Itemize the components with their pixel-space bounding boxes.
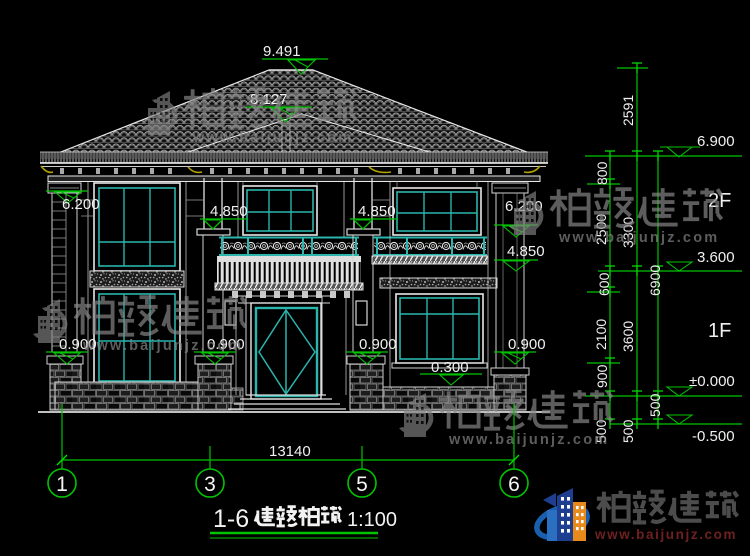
svg-text:9.491: 9.491 xyxy=(263,43,301,60)
svg-text:500: 500 xyxy=(620,419,636,443)
svg-text:4.850: 4.850 xyxy=(507,243,545,260)
svg-text:1-6: 1-6 xyxy=(213,505,249,533)
svg-text:800: 800 xyxy=(594,161,610,185)
svg-text:3.600: 3.600 xyxy=(697,249,735,266)
svg-text:13140: 13140 xyxy=(269,443,311,460)
svg-text:600: 600 xyxy=(596,272,612,296)
svg-text:6.900: 6.900 xyxy=(697,133,735,150)
svg-text:1:100: 1:100 xyxy=(347,509,397,531)
svg-text:0.900: 0.900 xyxy=(508,336,546,353)
svg-text:500: 500 xyxy=(647,393,663,417)
svg-text:www.baijunjz.com: www.baijunjz.com xyxy=(594,527,737,542)
svg-text:0.900: 0.900 xyxy=(359,336,397,353)
svg-text:900: 900 xyxy=(594,364,610,388)
svg-text:2100: 2100 xyxy=(593,319,609,350)
svg-text:2591: 2591 xyxy=(620,95,636,126)
svg-text:6900: 6900 xyxy=(647,265,663,296)
svg-text:1F: 1F xyxy=(708,320,731,342)
svg-text:6: 6 xyxy=(508,473,520,496)
svg-text:6.200: 6.200 xyxy=(62,196,100,213)
svg-text:1: 1 xyxy=(56,473,68,496)
svg-text:3600: 3600 xyxy=(620,321,636,352)
svg-text:4.850: 4.850 xyxy=(210,203,248,220)
svg-text:4.850: 4.850 xyxy=(358,203,396,220)
svg-text:3: 3 xyxy=(204,473,216,496)
svg-text:-0.500: -0.500 xyxy=(692,428,735,445)
svg-text:5: 5 xyxy=(356,473,368,496)
svg-text:±0.000: ±0.000 xyxy=(689,373,735,390)
